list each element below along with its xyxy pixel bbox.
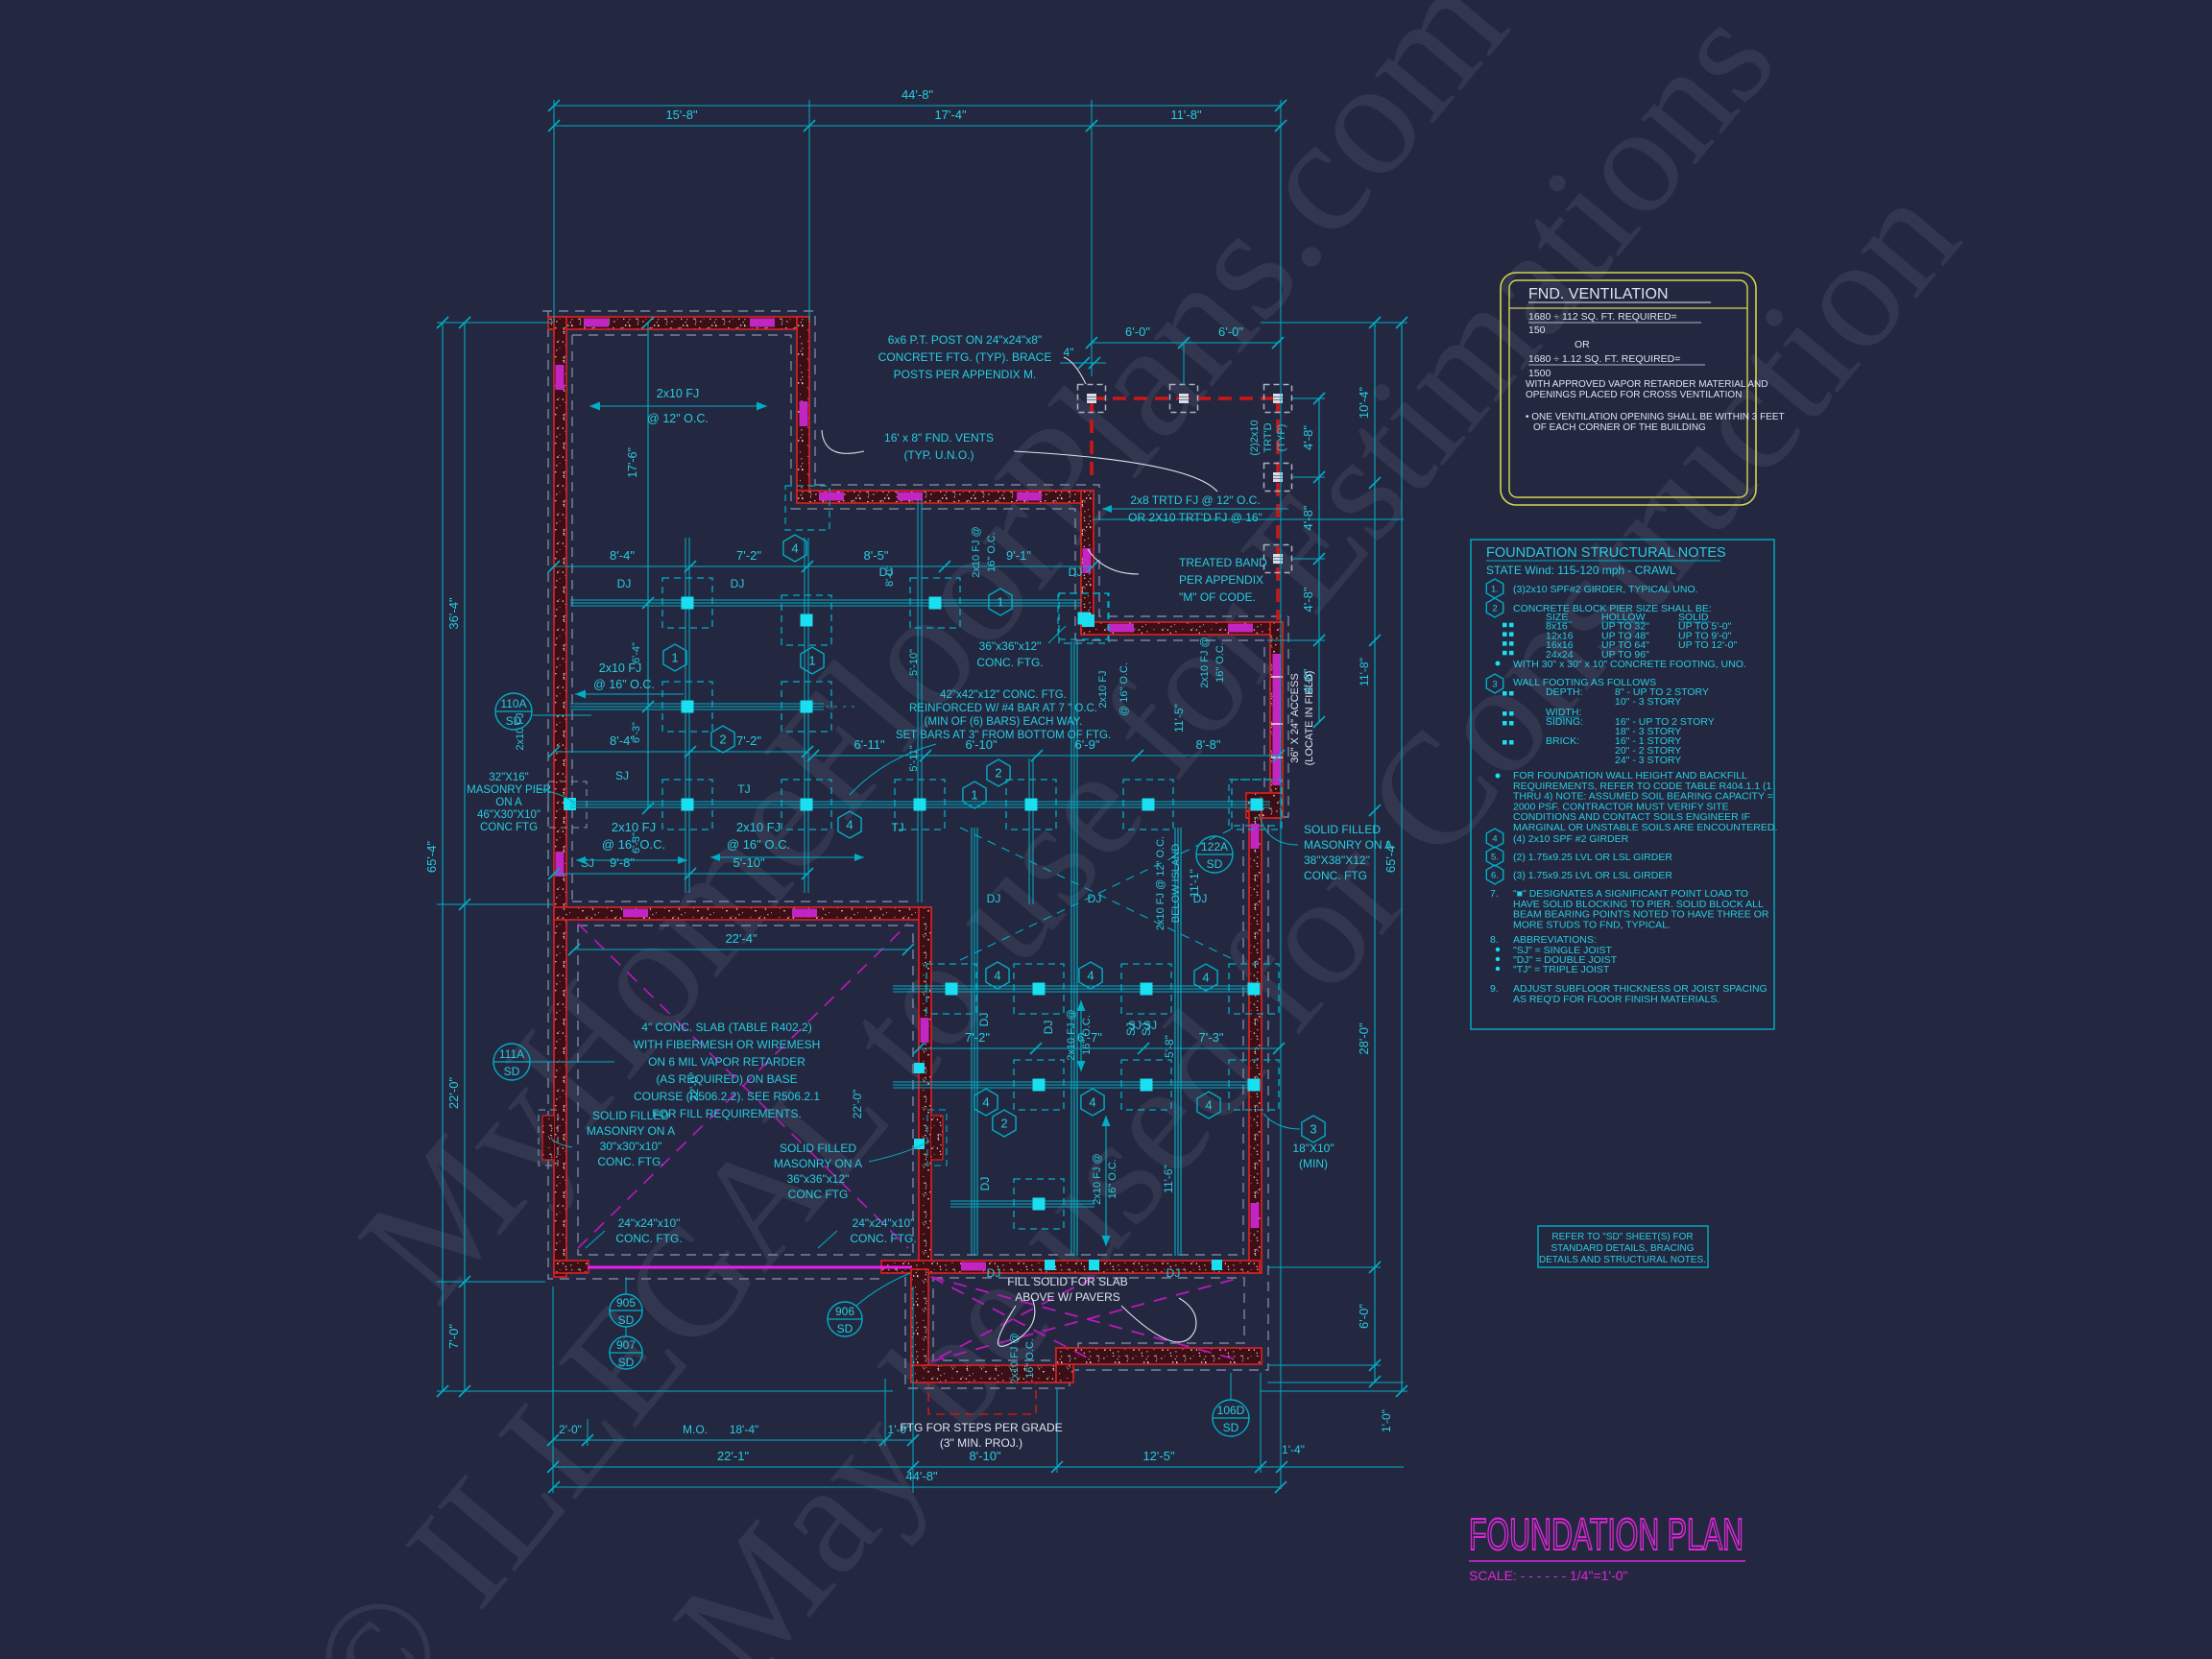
svg-text:7'-2": 7'-2" xyxy=(736,548,761,563)
svg-text:17'-4": 17'-4" xyxy=(934,108,967,122)
svg-text:SD: SD xyxy=(618,1313,635,1327)
svg-text:DJ: DJ xyxy=(1088,892,1102,905)
svg-text:BRICK:: BRICK: xyxy=(1546,735,1579,747)
svg-text:36"x36"x12": 36"x36"x12" xyxy=(787,1172,850,1186)
svg-text:1500: 1500 xyxy=(1528,368,1551,379)
svg-text:44'-8": 44'-8" xyxy=(902,87,934,102)
svg-text:OPENINGS PLACED FOR CROSS VENT: OPENINGS PLACED FOR CROSS VENTILATION xyxy=(1526,390,1742,400)
svg-text:1: 1 xyxy=(808,654,815,668)
svg-text:7'-2": 7'-2" xyxy=(965,1030,990,1045)
svg-text:24" - 3 STORY: 24" - 3 STORY xyxy=(1615,755,1681,766)
svg-text:BELOW ISLAND: BELOW ISLAND xyxy=(1170,844,1182,924)
svg-text:30"x30"x10": 30"x30"x10" xyxy=(600,1140,662,1153)
svg-text:24"x24"x10": 24"x24"x10" xyxy=(853,1216,915,1230)
svg-text:(AS REQUIRED) ON BASE: (AS REQUIRED) ON BASE xyxy=(656,1072,797,1086)
svg-text:42"x42"x12" CONC. FTG.: 42"x42"x12" CONC. FTG. xyxy=(940,689,1067,701)
svg-text:36'-4": 36'-4" xyxy=(446,597,461,630)
svg-text:1'-4": 1'-4" xyxy=(1282,1443,1305,1456)
svg-text:SD: SD xyxy=(506,714,522,728)
svg-text:UP TO 12'-0": UP TO 12'-0" xyxy=(1678,639,1737,651)
svg-text:2x10 FJ @ 12" O.C.: 2x10 FJ @ 12" O.C. xyxy=(1155,836,1166,930)
svg-text:CONC. FTG.: CONC. FTG. xyxy=(850,1232,916,1245)
svg-text:2x10 FJ @: 2x10 FJ @ xyxy=(971,526,982,577)
svg-text:DJ: DJ xyxy=(1042,1021,1055,1035)
svg-text:(2) 1.75x9.25 LVL OR LSL GIRDE: (2) 1.75x9.25 LVL OR LSL GIRDER xyxy=(1513,852,1672,863)
svg-text:REFER TO "SD" SHEET(S) FOR: REFER TO "SD" SHEET(S) FOR xyxy=(1551,1232,1693,1242)
svg-text:SCALE: - - - - - - 1/4"=1'-0: SCALE: - - - - - - 1/4"=1'-0" xyxy=(1469,1568,1628,1583)
svg-text:6'-0": 6'-0" xyxy=(1218,325,1243,339)
svg-text:SD: SD xyxy=(504,1065,520,1078)
svg-text:106D: 106D xyxy=(1217,1404,1245,1417)
svg-text:"M" OF CODE.: "M" OF CODE. xyxy=(1179,590,1256,604)
svg-text:ABOVE W/ PAVERS: ABOVE W/ PAVERS xyxy=(1015,1290,1120,1304)
svg-text:DJ: DJ xyxy=(978,1177,992,1191)
svg-text:4: 4 xyxy=(791,541,798,556)
svg-text:(LOCATE IN FIELD): (LOCATE IN FIELD) xyxy=(1304,671,1315,766)
svg-text:36" X 24" ACCESS: 36" X 24" ACCESS xyxy=(1289,673,1301,762)
svg-text:• ONE VENTILATION OPENING SHAL: • ONE VENTILATION OPENING SHALL BE WITHI… xyxy=(1526,412,1785,422)
svg-text:(2)2x10: (2)2x10 xyxy=(1249,420,1261,455)
svg-text:FOUNDATION PLAN: FOUNDATION PLAN xyxy=(1469,1509,1743,1559)
svg-text:18'-4": 18'-4" xyxy=(730,1423,759,1436)
svg-text:OR 2X10 TRT'D FJ @ 16": OR 2X10 TRT'D FJ @ 16" xyxy=(1128,511,1262,524)
svg-text:16" O.C.: 16" O.C. xyxy=(1107,1159,1118,1199)
svg-text:MASONRY PIER: MASONRY PIER xyxy=(467,784,551,796)
svg-text:1680 ÷ 1.12 SQ. FT. REQUIRED=: 1680 ÷ 1.12 SQ. FT. REQUIRED= xyxy=(1528,353,1680,365)
svg-text:SIDING:: SIDING: xyxy=(1546,716,1583,728)
svg-text:CONC. FTG: CONC. FTG xyxy=(1304,869,1367,882)
svg-text:3: 3 xyxy=(1492,679,1497,689)
svg-text:22'-0": 22'-0" xyxy=(851,1090,864,1119)
svg-text:PER APPENDIX: PER APPENDIX xyxy=(1179,573,1263,587)
svg-text:65'-4": 65'-4" xyxy=(424,841,439,874)
svg-text:1'-0": 1'-0" xyxy=(1380,1409,1393,1432)
svg-text:4: 4 xyxy=(994,969,1000,983)
svg-text:6'-0": 6'-0" xyxy=(1357,1304,1371,1329)
svg-text:122A: 122A xyxy=(1201,840,1228,854)
svg-text:8'-10": 8'-10" xyxy=(969,1449,1001,1463)
svg-text:6'-3": 6'-3" xyxy=(631,722,642,743)
svg-text:4: 4 xyxy=(1089,1095,1095,1110)
svg-text:DETAILS AND STRUCTURAL NOTES.: DETAILS AND STRUCTURAL NOTES. xyxy=(1539,1255,1706,1265)
svg-text:24"x24"x10": 24"x24"x10" xyxy=(618,1216,681,1230)
svg-text:(3) 1.75x9.25 LVL OR LSL GIRDE: (3) 1.75x9.25 LVL OR LSL GIRDER xyxy=(1513,870,1672,881)
svg-text:4: 4 xyxy=(1087,969,1094,983)
svg-text:@ 16" O.C.: @ 16" O.C. xyxy=(727,837,790,852)
svg-text:16" O.C.: 16" O.C. xyxy=(1214,642,1226,683)
svg-text:2x10 FJ: 2x10 FJ xyxy=(599,661,641,675)
svg-text:TJ: TJ xyxy=(737,782,750,796)
svg-text:8'-4": 8'-4" xyxy=(610,548,635,563)
svg-text:111A: 111A xyxy=(499,1047,524,1061)
svg-text:MARGINAL OR UNSTABLE SOILS ARE: MARGINAL OR UNSTABLE SOILS ARE ENCOUNTER… xyxy=(1513,822,1777,833)
svg-text:10" - 3 STORY: 10" - 3 STORY xyxy=(1615,696,1681,708)
svg-text:1680 ÷ 112 SQ. FT. REQUIRED=: 1680 ÷ 112 SQ. FT. REQUIRED= xyxy=(1528,311,1677,323)
svg-text:SD: SD xyxy=(1207,857,1223,871)
svg-text:(3" MIN. PROJ.): (3" MIN. PROJ.) xyxy=(940,1436,1022,1450)
svg-text:1: 1 xyxy=(971,788,977,803)
svg-text:1.: 1. xyxy=(1491,584,1499,594)
svg-text:2x10 FJ: 2x10 FJ xyxy=(736,820,781,834)
svg-text:M.O.: M.O. xyxy=(683,1423,708,1436)
svg-text:DJ: DJ xyxy=(617,577,632,590)
svg-text:SET BARS AT 3" FROM BOTTOM OF: SET BARS AT 3" FROM BOTTOM OF FTG. xyxy=(896,730,1111,741)
svg-text:SJ: SJ xyxy=(1143,1019,1157,1032)
svg-text:(MIN): (MIN) xyxy=(1299,1157,1328,1170)
svg-text:8'-8": 8'-8" xyxy=(1196,737,1221,752)
svg-text:16" O.C.: 16" O.C. xyxy=(1024,1338,1036,1379)
svg-text:MASONRY ON A: MASONRY ON A xyxy=(1304,838,1392,852)
svg-text:1: 1 xyxy=(997,595,1003,610)
svg-text:@ 16" O.C.: @ 16" O.C. xyxy=(593,678,655,691)
svg-text:2: 2 xyxy=(1492,603,1497,613)
svg-text:(MIN OF (6) BARS) EACH WAY.: (MIN OF (6) BARS) EACH WAY. xyxy=(925,716,1083,728)
svg-text:SD: SD xyxy=(618,1356,635,1369)
svg-text:(TYP. U.N.O.): (TYP. U.N.O.) xyxy=(903,448,974,462)
svg-text:REINFORCED W/ #4 BAR AT 7 " O: REINFORCED W/ #4 BAR AT 7 " O.C. xyxy=(909,703,1097,714)
svg-text:TREATED BAND: TREATED BAND xyxy=(1179,556,1267,569)
svg-text:FOUNDATION STRUCTURAL NOTES: FOUNDATION STRUCTURAL NOTES xyxy=(1486,545,1726,561)
svg-text:2: 2 xyxy=(995,766,1001,781)
svg-text:4: 4 xyxy=(982,1095,989,1110)
svg-text:DJ: DJ xyxy=(731,577,745,590)
svg-text:MASONRY ON A: MASONRY ON A xyxy=(774,1157,862,1170)
svg-text:SJ: SJ xyxy=(1128,1019,1142,1032)
svg-text:10'-4": 10'-4" xyxy=(1357,387,1371,420)
svg-text:AS REQ'D FOR FLOOR FINISH MATE: AS REQ'D FOR FLOOR FINISH MATERIALS. xyxy=(1513,994,1719,1005)
svg-text:7'-0": 7'-0" xyxy=(446,1324,461,1349)
svg-text:FOR FILL REQUIREMENTS.: FOR FILL REQUIREMENTS. xyxy=(652,1107,802,1120)
svg-text:2x10 FJ @: 2x10 FJ @ xyxy=(1092,1153,1103,1204)
svg-text:5'-11": 5'-11" xyxy=(908,745,920,771)
svg-text:36"x36"x12": 36"x36"x12" xyxy=(979,639,1042,653)
svg-text:907: 907 xyxy=(616,1338,636,1352)
svg-text:DJ: DJ xyxy=(879,565,894,579)
svg-text:16' x 8" FND. VENTS: 16' x 8" FND. VENTS xyxy=(884,431,994,445)
svg-text:TRT'D: TRT'D xyxy=(1262,422,1274,452)
svg-text:18"X10": 18"X10" xyxy=(1292,1142,1334,1155)
svg-text:9.: 9. xyxy=(1490,983,1499,995)
svg-text:4" CONC. SLAB (TABLE R402.2): 4" CONC. SLAB (TABLE R402.2) xyxy=(641,1021,811,1034)
svg-text:"TJ" = TRIPLE JOIST: "TJ" = TRIPLE JOIST xyxy=(1513,964,1610,975)
svg-text:POSTS PER APPENDIX M.: POSTS PER APPENDIX M. xyxy=(894,368,1037,381)
svg-text:906: 906 xyxy=(835,1305,854,1318)
svg-text:FILL SOLID FOR SLAB: FILL SOLID FOR SLAB xyxy=(1007,1275,1128,1288)
svg-text:17'-6": 17'-6" xyxy=(626,447,639,478)
svg-text:CONC. FTG.: CONC. FTG. xyxy=(597,1155,663,1168)
svg-text:11'-6": 11'-6" xyxy=(1162,1165,1175,1193)
svg-text:4: 4 xyxy=(846,818,853,832)
svg-text:DJ: DJ xyxy=(987,892,1001,905)
svg-text:1: 1 xyxy=(671,651,678,665)
svg-text:11'-8": 11'-8" xyxy=(1358,658,1371,686)
svg-text:(TYP): (TYP) xyxy=(1276,424,1287,452)
svg-text:DJ: DJ xyxy=(977,1013,991,1027)
svg-text:CONC FTG: CONC FTG xyxy=(788,1188,849,1201)
svg-text:32"X16": 32"X16" xyxy=(489,772,528,783)
svg-text:@ 16" O.C.: @ 16" O.C. xyxy=(1118,662,1130,716)
svg-text:(3)2x10 SPF#2 GIRDER, TYPICAL: (3)2x10 SPF#2 GIRDER, TYPICAL UNO. xyxy=(1513,584,1698,595)
svg-text:@ 12" O.C.: @ 12" O.C. xyxy=(647,412,709,425)
svg-text:@ 16" O.C.: @ 16" O.C. xyxy=(602,837,665,852)
svg-text:DEPTH:: DEPTH: xyxy=(1546,686,1583,698)
svg-text:WITH 30" x 30" x 10" CONCRETE: WITH 30" x 30" x 10" CONCRETE FOOTING, U… xyxy=(1513,659,1746,670)
svg-text:9'-1": 9'-1" xyxy=(1006,548,1031,563)
svg-text:11'-5": 11'-5" xyxy=(1172,704,1186,733)
svg-text:DJ: DJ xyxy=(1193,892,1208,905)
svg-text:22'-4": 22'-4" xyxy=(725,931,757,946)
svg-text:FTG FOR STEPS PER GRADE: FTG FOR STEPS PER GRADE xyxy=(900,1421,1062,1434)
svg-text:WITH APPROVED VAPOR RETARDER M: WITH APPROVED VAPOR RETARDER MATERIAL AN… xyxy=(1526,379,1767,390)
svg-text:8'-5": 8'-5" xyxy=(864,548,889,563)
svg-text:2: 2 xyxy=(719,733,726,747)
svg-text:28'-0": 28'-0" xyxy=(1357,1022,1371,1055)
svg-text:2x8 TRTD FJ @ 12" O.C.: 2x8 TRTD FJ @ 12" O.C. xyxy=(1130,493,1260,507)
svg-text:STANDARD DETAILS, BRACING: STANDARD DETAILS, BRACING xyxy=(1551,1243,1694,1254)
svg-text:STATE Wind: 115-120 mph - CRAW: STATE Wind: 115-120 mph - CRAWL xyxy=(1486,564,1676,577)
svg-text:905: 905 xyxy=(616,1296,636,1310)
svg-text:DJ: DJ xyxy=(1166,1266,1181,1280)
svg-text:FND. VENTILATION: FND. VENTILATION xyxy=(1528,286,1669,302)
svg-text:22'-0": 22'-0" xyxy=(446,1077,461,1110)
svg-text:OR: OR xyxy=(1575,339,1590,350)
svg-text:4: 4 xyxy=(1205,1098,1212,1113)
svg-text:COURSE (R506.2.2). SEE R506.2.: COURSE (R506.2.2). SEE R506.2.1 xyxy=(634,1090,820,1103)
svg-text:4: 4 xyxy=(1492,833,1497,844)
svg-text:150: 150 xyxy=(1528,325,1546,336)
svg-text:5'-10": 5'-10" xyxy=(908,649,920,676)
svg-text:4'-8": 4'-8" xyxy=(1301,505,1315,530)
svg-text:DJ: DJ xyxy=(987,1266,1001,1280)
svg-text:44'-8": 44'-8" xyxy=(905,1469,938,1483)
svg-text:15'-8": 15'-8" xyxy=(665,108,698,122)
svg-text:16" O.C.: 16" O.C. xyxy=(986,532,998,572)
svg-text:2: 2 xyxy=(1000,1117,1007,1131)
svg-text:6'-4": 6'-4" xyxy=(631,642,642,663)
svg-text:2x10 FJ @: 2x10 FJ @ xyxy=(1066,1009,1077,1060)
svg-text:22'-1": 22'-1" xyxy=(717,1449,750,1463)
svg-text:6'-11": 6'-11" xyxy=(854,737,885,752)
svg-text:6'-0": 6'-0" xyxy=(1125,325,1150,339)
svg-text:2x10 FJ: 2x10 FJ xyxy=(612,820,656,834)
svg-text:6x6 P.T. POST ON 24"x24"x8": 6x6 P.T. POST ON 24"x24"x8" xyxy=(888,333,1042,347)
svg-text:SJ: SJ xyxy=(615,769,629,782)
svg-text:CONC FTG: CONC FTG xyxy=(480,822,538,833)
svg-text:8.: 8. xyxy=(1490,934,1499,946)
svg-text:5'-8": 5'-8" xyxy=(1163,1035,1176,1058)
svg-text:4: 4 xyxy=(1202,971,1209,985)
svg-text:110A: 110A xyxy=(500,697,526,710)
svg-text:9'-8": 9'-8" xyxy=(610,855,635,870)
svg-text:4'-8": 4'-8" xyxy=(1301,587,1315,612)
svg-text:46"X30"X10": 46"X30"X10" xyxy=(477,809,541,821)
svg-text:ON 6 MIL VAPOR RETARDER: ON 6 MIL VAPOR RETARDER xyxy=(648,1055,805,1069)
svg-text:2'-0": 2'-0" xyxy=(559,1423,582,1436)
svg-text:2x10 FJ: 2x10 FJ xyxy=(657,387,699,400)
svg-text:3: 3 xyxy=(1310,1122,1316,1137)
svg-text:MASONRY ON A: MASONRY ON A xyxy=(587,1124,675,1138)
svg-text:TJ: TJ xyxy=(891,821,903,834)
svg-text:OF EACH CORNER OF THE BUILDING: OF EACH CORNER OF THE BUILDING xyxy=(1533,422,1706,433)
svg-text:(4) 2x10 SPF #2 GIRDER: (4) 2x10 SPF #2 GIRDER xyxy=(1513,833,1629,845)
svg-text:4'-8": 4'-8" xyxy=(1301,425,1315,450)
svg-text:5.: 5. xyxy=(1491,852,1499,862)
svg-text:11'-8": 11'-8" xyxy=(1170,108,1202,122)
svg-text:16" O.C.: 16" O.C. xyxy=(1081,1015,1093,1055)
svg-text:6.: 6. xyxy=(1491,870,1499,880)
svg-text:2x10 FJ: 2x10 FJ xyxy=(1097,670,1109,708)
svg-text:38"X38"X12": 38"X38"X12" xyxy=(1304,854,1370,867)
svg-text:7.: 7. xyxy=(1490,888,1499,900)
svg-text:WITH FIBERMESH OR WIREMESH: WITH FIBERMESH OR WIREMESH xyxy=(634,1038,821,1051)
svg-text:DJ: DJ xyxy=(1069,565,1083,579)
svg-text:CONC. FTG.: CONC. FTG. xyxy=(976,656,1043,669)
svg-text:2x10 FJ @: 2x10 FJ @ xyxy=(1199,637,1211,687)
svg-text:SOLID FILLED: SOLID FILLED xyxy=(1304,823,1381,836)
svg-text:SD: SD xyxy=(1223,1421,1239,1434)
svg-text:SOLID FILLED: SOLID FILLED xyxy=(780,1142,856,1155)
svg-text:CONC. FTG.: CONC. FTG. xyxy=(615,1232,682,1245)
svg-text:ON A: ON A xyxy=(495,797,522,808)
svg-text:7'-2": 7'-2" xyxy=(736,733,761,748)
svg-text:12'-5": 12'-5" xyxy=(1142,1449,1175,1463)
svg-text:SD: SD xyxy=(837,1322,854,1335)
svg-text:7'-3": 7'-3" xyxy=(1199,1030,1224,1045)
svg-text:MORE STUDS TO FND, TYPICAL.: MORE STUDS TO FND, TYPICAL. xyxy=(1513,919,1671,930)
svg-text:CONCRETE FTG. (TYP). BRACE: CONCRETE FTG. (TYP). BRACE xyxy=(878,350,1052,364)
